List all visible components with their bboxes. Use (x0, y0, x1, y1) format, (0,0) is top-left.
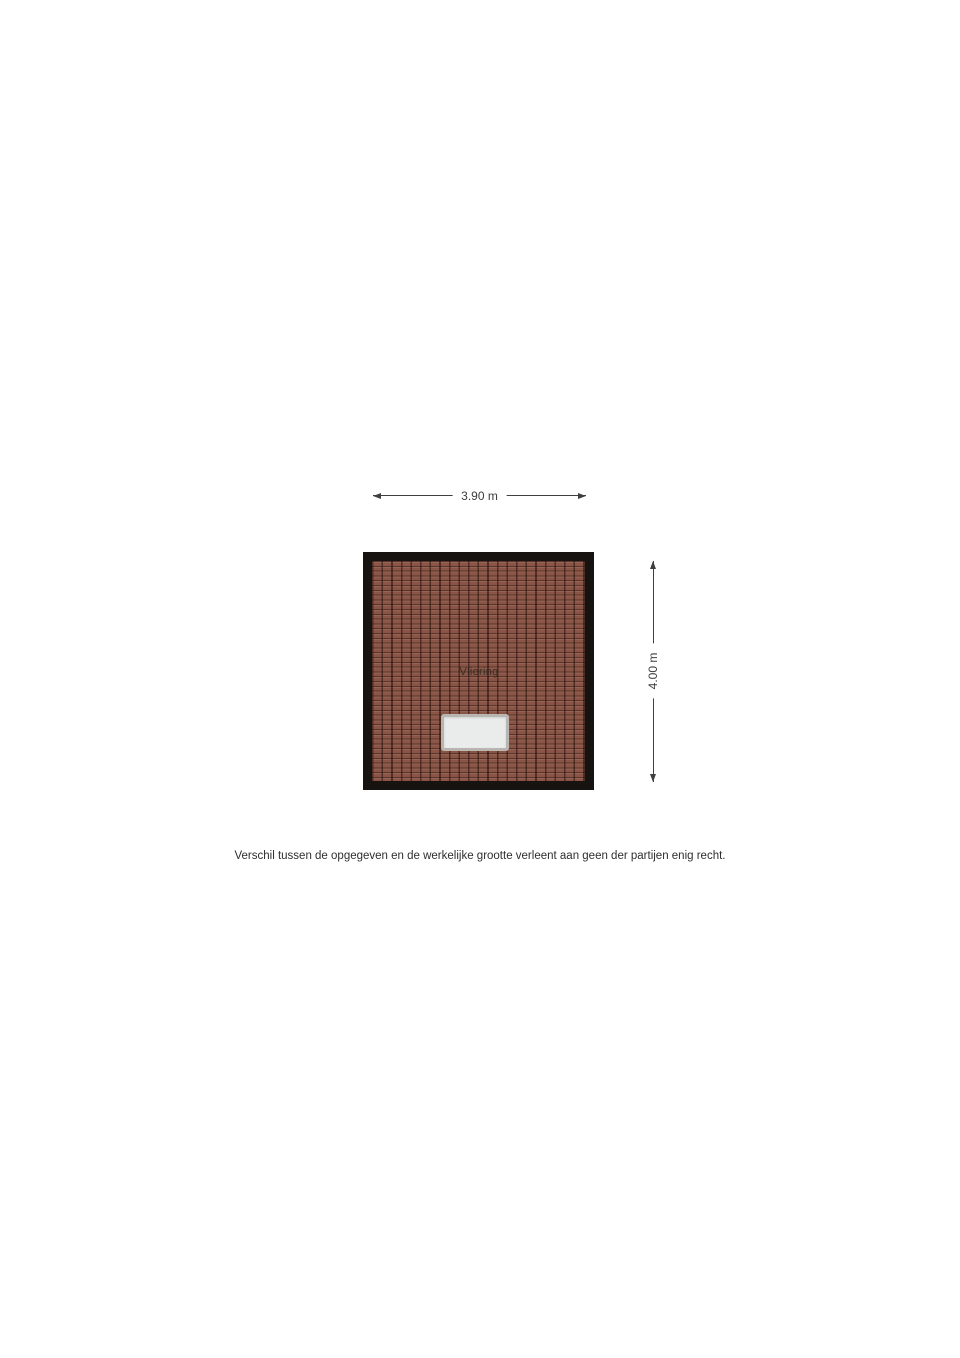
arrow-left-icon (373, 493, 381, 499)
arrow-right-icon (578, 493, 586, 499)
floorplan-page: 3.90 m Vliering 4.00 m Verschil tussen d… (0, 0, 960, 1358)
width-dimension: 3.90 m (373, 489, 586, 503)
arrow-up-icon (650, 561, 656, 569)
width-dimension-label: 3.90 m (452, 489, 507, 503)
roof-tile-floor: Vliering (372, 561, 585, 781)
hatch-opening (441, 714, 509, 751)
disclaimer-text: Verschil tussen de opgegeven en de werke… (0, 848, 960, 864)
height-dimension: 4.00 m (646, 561, 662, 782)
height-dimension-label: 4.00 m (646, 644, 660, 699)
room-label: Vliering (459, 666, 498, 678)
arrow-down-icon (650, 774, 656, 782)
room-outline: Vliering (363, 552, 594, 790)
